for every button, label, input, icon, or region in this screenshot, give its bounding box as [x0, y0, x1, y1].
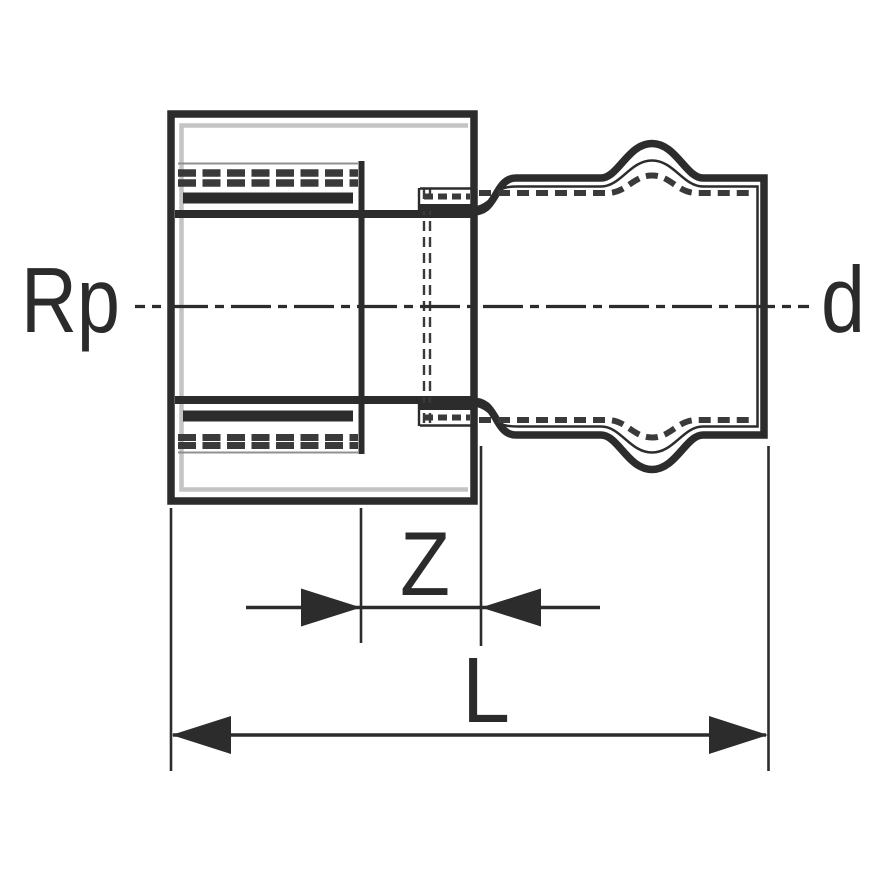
- label-outer-diameter: d: [821, 247, 865, 352]
- drawing-canvas: Rp d Z L: [0, 0, 885, 885]
- thread-core-band: [183, 193, 353, 204]
- label-overall-length: L: [462, 638, 510, 742]
- arrowhead-left-icon: [481, 589, 541, 627]
- thread-core-band: [183, 411, 353, 422]
- label-insertion-depth: Z: [400, 514, 450, 615]
- arrowhead-right-icon: [301, 589, 361, 627]
- press-fitting-technical-drawing: Rp d Z L: [0, 0, 885, 885]
- arrowhead-right-icon: [709, 716, 768, 754]
- label-thread-size: Rp: [21, 248, 120, 352]
- arrowhead-left-icon: [172, 716, 232, 754]
- thread-hatch-bottom: [178, 411, 358, 453]
- thread-hatch-top: [178, 164, 358, 204]
